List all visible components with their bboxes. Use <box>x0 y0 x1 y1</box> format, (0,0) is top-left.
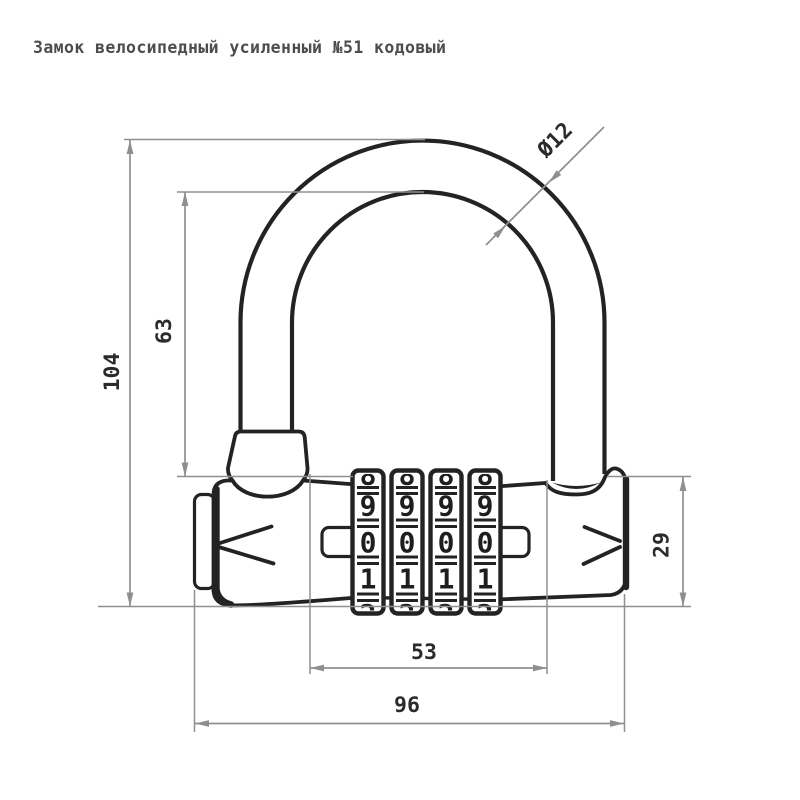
drawing-page: Замок велосипедный усиленный №51 кодовый <box>0 0 800 800</box>
shackle-inner-arc <box>292 192 553 323</box>
extension-lines <box>98 140 691 733</box>
dim-label-dial-width: 53 <box>411 640 437 665</box>
dim-label-shackle-height: 63 <box>152 318 177 344</box>
shackle-left-leg <box>241 323 293 434</box>
dim-label-shackle-diameter: Ø12 <box>532 118 578 164</box>
dim-label-total-height: 104 <box>100 353 125 392</box>
dimension-annotations: 104 63 29 53 96 Ø12 <box>98 118 691 732</box>
dial-digit: 1 <box>399 563 416 596</box>
lock-drawing: 8 9 0 1 2 8 9 0 <box>195 141 627 631</box>
shackle-right-leg <box>553 323 605 482</box>
dial-column-4: 8 9 0 1 2 <box>470 459 501 632</box>
left-leg-collar <box>228 432 308 497</box>
dim-label-body-height: 29 <box>650 532 675 558</box>
dial-digit: 0 <box>360 526 377 559</box>
right-leg-end-lens <box>552 483 601 490</box>
dial-digit: 0 <box>399 526 416 559</box>
dial-digit: 0 <box>477 526 494 559</box>
left-end-cap <box>195 495 215 589</box>
dial-column-2: 8 9 0 1 2 <box>392 459 423 632</box>
dial-digit: 0 <box>438 526 455 559</box>
dial-digit: 1 <box>477 563 494 596</box>
dial-column-3: 8 9 0 1 2 <box>431 459 462 632</box>
dim-label-total-width: 96 <box>394 693 420 718</box>
combination-dials: 8 9 0 1 2 8 9 0 <box>353 459 501 632</box>
page-title: Замок велосипедный усиленный №51 кодовый <box>33 38 446 57</box>
dial-column-1: 8 9 0 1 2 <box>353 459 384 632</box>
technical-drawing: Замок велосипедный усиленный №51 кодовый <box>0 0 800 800</box>
dial-digit: 1 <box>360 563 377 596</box>
dimension-lines <box>130 127 683 724</box>
dial-digit: 1 <box>438 563 455 596</box>
